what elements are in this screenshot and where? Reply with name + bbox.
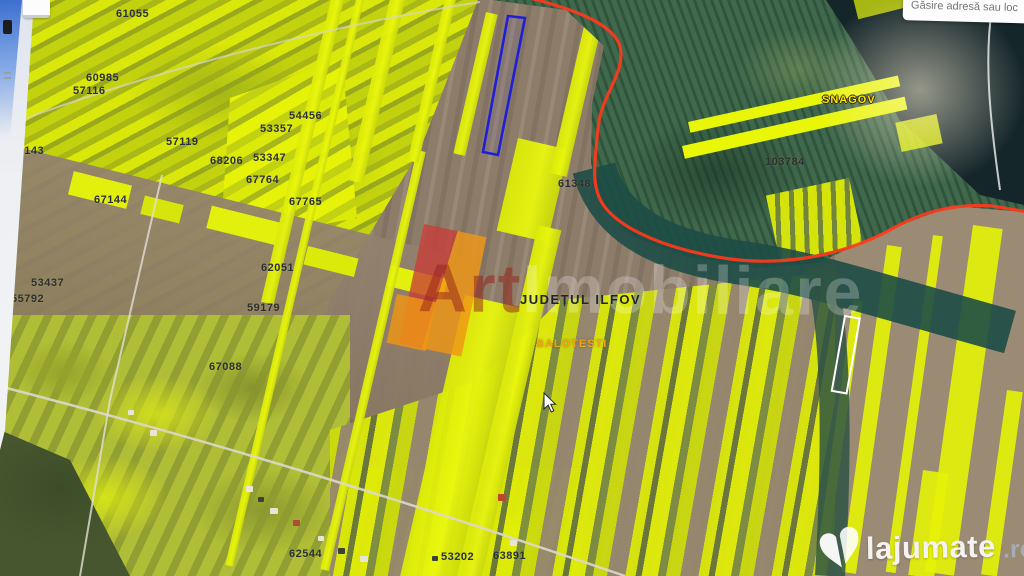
house xyxy=(270,508,278,514)
adjacent-window-text-mark xyxy=(4,72,11,74)
search-input[interactable] xyxy=(909,0,1024,16)
watermark: ArtImobiliare xyxy=(418,249,1024,347)
house xyxy=(338,548,345,554)
logo-tld-text: .ro xyxy=(1003,535,1024,565)
parcel-label: 61055 xyxy=(116,8,149,20)
parcel-label: 54456 xyxy=(289,110,322,122)
parcel-label: 53347 xyxy=(253,152,286,164)
parcel-label: 57116 xyxy=(73,85,105,97)
parcel-label: 53437 xyxy=(31,277,64,289)
field-right xyxy=(835,190,1024,576)
parcel-label: 61348 xyxy=(558,178,591,190)
house xyxy=(246,486,253,492)
parcel-label: 59179 xyxy=(247,302,280,314)
house xyxy=(318,536,324,541)
parcel-label: 62051 xyxy=(261,262,294,274)
house xyxy=(293,520,300,526)
house xyxy=(432,556,438,561)
house xyxy=(258,497,264,502)
parcel-label: 67144 xyxy=(94,194,127,206)
parcel-label: 53202 xyxy=(441,551,474,563)
top-white-card xyxy=(23,0,50,18)
map-viewport[interactable]: ArtImobiliare 61055 60985 57116 67143 67… xyxy=(0,0,1024,576)
parcel-label: 53357 xyxy=(260,123,293,135)
parcel-label: 67088 xyxy=(209,361,242,373)
parcel-label: 68206 xyxy=(210,155,243,167)
parcel-label: 67764 xyxy=(246,174,279,186)
parcel-label: 55792 xyxy=(11,293,44,305)
adjacent-window-text-mark xyxy=(4,77,11,79)
search-box[interactable] xyxy=(903,0,1024,24)
parcel-label: 103784 xyxy=(765,156,805,168)
adjacent-window-icon xyxy=(3,20,12,34)
locality-label-snagov: SNAGOV xyxy=(822,94,876,106)
house xyxy=(150,430,157,436)
parcel-label: 67765 xyxy=(289,196,322,208)
house xyxy=(128,410,134,415)
locality-label-balotesti: BALOTESTI xyxy=(536,338,607,350)
parcel-label: 57119 xyxy=(166,136,198,148)
heart-icon xyxy=(815,524,867,575)
site-logo[interactable]: lajumate .ro xyxy=(818,522,1024,574)
screen-glare xyxy=(780,0,1024,220)
parcel-label: 63891 xyxy=(493,550,526,562)
parcel-label: 60985 xyxy=(86,72,119,84)
house xyxy=(360,556,368,562)
watermark-suffix: Imobiliare xyxy=(522,251,864,330)
logo-brand-text: lajumate xyxy=(866,529,996,567)
watermark-prefix: Art xyxy=(418,250,523,327)
house xyxy=(510,540,517,546)
house xyxy=(498,494,506,501)
county-label: JUDEȚUL ILFOV xyxy=(520,292,641,307)
parcel-label: 62544 xyxy=(289,548,322,560)
